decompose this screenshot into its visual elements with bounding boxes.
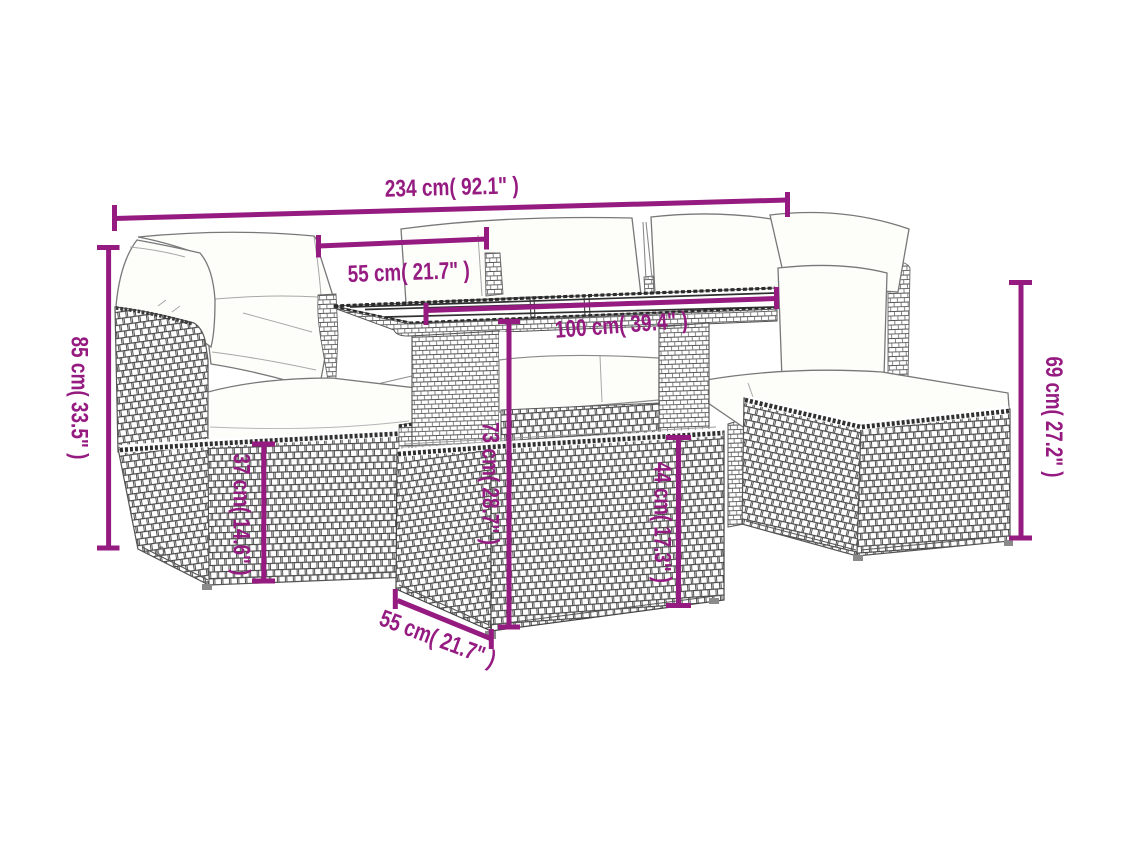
svg-text:234 cm( 92.1" ): 234 cm( 92.1" ) [384,172,519,202]
svg-text:85 cm( 33.5" ): 85 cm( 33.5" ) [66,337,93,460]
svg-text:69 cm( 27.2" ): 69 cm( 27.2" ) [1040,357,1067,478]
svg-text:37 cm( 14.6" ): 37 cm( 14.6" ) [228,454,255,576]
svg-text:55 cm( 21.7" ): 55 cm( 21.7" ) [347,257,470,288]
svg-text:73 cm( 28.7" ): 73 cm( 28.7" ) [477,422,504,545]
svg-text:44 cm( 17.3" ): 44 cm( 17.3" ) [649,462,676,583]
